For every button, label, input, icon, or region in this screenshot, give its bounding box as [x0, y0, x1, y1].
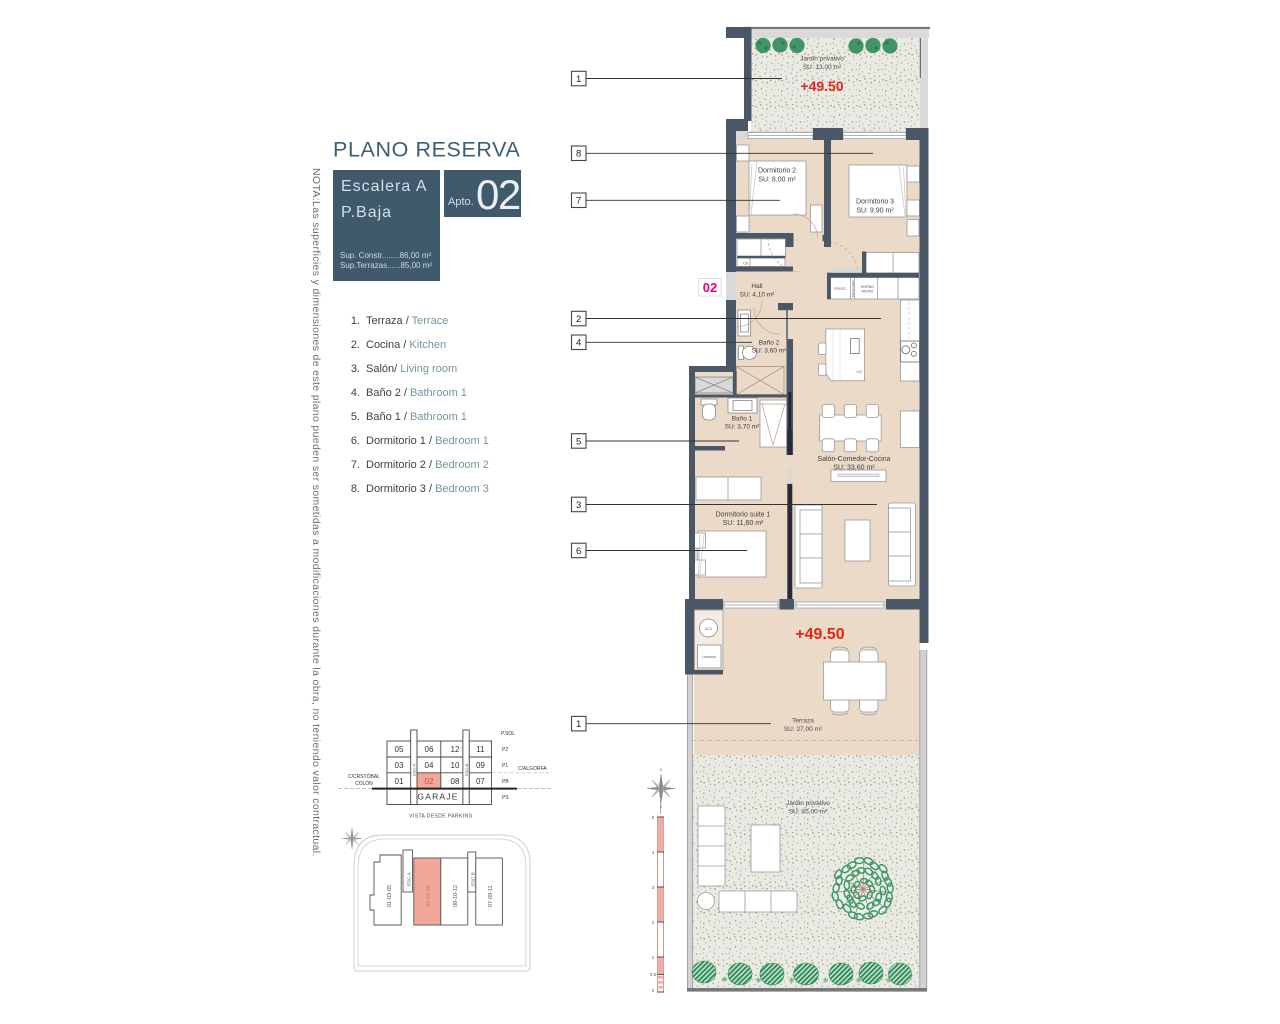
svg-text:SU: 11,60 m²: SU: 11,60 m² — [723, 520, 764, 527]
svg-text:Jardin privativo: Jardin privativo — [786, 800, 830, 807]
svg-text:Apto.: Apto. — [448, 196, 474, 208]
svg-text:Hall: Hall — [751, 283, 763, 290]
svg-text:02: 02 — [703, 280, 717, 295]
svg-text:08-10-12: 08-10-12 — [453, 885, 459, 907]
svg-text:3.: 3. — [351, 363, 360, 375]
svg-text:HORNO: HORNO — [861, 285, 875, 289]
svg-text:MICRO: MICRO — [862, 290, 874, 294]
svg-text:PLANO RESERVA: PLANO RESERVA — [333, 138, 520, 162]
svg-text:ESC-A: ESC-A — [407, 872, 412, 886]
svg-text:SU: 13,00 m²: SU: 13,00 m² — [803, 64, 842, 71]
svg-text:04: 04 — [425, 761, 434, 770]
svg-text:P1: P1 — [502, 763, 508, 769]
svg-text:07-09-11: 07-09-11 — [488, 885, 494, 907]
svg-text:+49.50: +49.50 — [800, 78, 843, 94]
svg-text:6.: 6. — [351, 435, 360, 447]
svg-text:SU: 33,60 m²: SU: 33,60 m² — [833, 465, 875, 472]
svg-text:5.: 5. — [351, 411, 360, 423]
svg-text:2: 2 — [576, 314, 581, 325]
svg-text:S: S — [660, 804, 663, 809]
svg-text:CE: CE — [743, 261, 749, 266]
svg-text:COLÓN: COLÓN — [355, 780, 373, 787]
svg-text:ACS: ACS — [705, 627, 713, 631]
svg-text:FRIGO: FRIGO — [834, 287, 846, 291]
svg-text:02: 02 — [476, 171, 520, 218]
svg-text:Salón-Comedor-Cocina: Salón-Comedor-Cocina — [817, 456, 890, 463]
svg-text:PS: PS — [502, 795, 509, 801]
svg-text:11: 11 — [476, 745, 485, 754]
svg-text:2.: 2. — [351, 339, 360, 351]
svg-text:01-03-05: 01-03-05 — [387, 885, 393, 907]
svg-text:Dormitorio 2: Dormitorio 2 — [758, 168, 796, 175]
svg-text:3: 3 — [576, 500, 581, 511]
svg-text:07: 07 — [476, 777, 485, 786]
svg-text:4.: 4. — [351, 387, 360, 399]
svg-text:Salón/ Living room: Salón/ Living room — [366, 363, 457, 375]
svg-text:1.: 1. — [351, 315, 360, 327]
svg-text:7.: 7. — [351, 459, 360, 471]
svg-text:Dormitorio 3 / Bedroom 3: Dormitorio 3 / Bedroom 3 — [366, 483, 489, 495]
svg-text:Baño 2: Baño 2 — [759, 340, 780, 347]
svg-text:SU: 3,60 m²: SU: 3,60 m² — [752, 348, 788, 355]
svg-text:Lavadora: Lavadora — [702, 655, 716, 659]
svg-text:06: 06 — [425, 745, 434, 754]
svg-text:Dormitorio 1 / Bedroom 1: Dormitorio 1 / Bedroom 1 — [366, 435, 489, 447]
svg-text:SU: 45,00 m²: SU: 45,00 m² — [789, 809, 828, 816]
svg-text:5: 5 — [576, 436, 581, 447]
svg-text:P2: P2 — [502, 747, 508, 753]
svg-text:Sup. Constr........86,00 m²: Sup. Constr........86,00 m² — [340, 251, 431, 260]
svg-text:ESC-A: ESC-A — [412, 763, 417, 776]
svg-text:8: 8 — [576, 149, 581, 160]
svg-text:0.5: 0.5 — [650, 972, 657, 977]
svg-text:08: 08 — [451, 777, 460, 786]
svg-text:7: 7 — [576, 196, 581, 207]
svg-text:10: 10 — [451, 761, 460, 770]
svg-text:Dormitorio 3: Dormitorio 3 — [856, 199, 894, 206]
svg-text:02: 02 — [425, 777, 434, 786]
svg-text:GARAJE: GARAJE — [417, 792, 458, 802]
svg-text:ESC-B: ESC-B — [464, 763, 469, 776]
svg-text:Baño 1 / Bathroom 1: Baño 1 / Bathroom 1 — [366, 411, 467, 423]
svg-text:Baño 1: Baño 1 — [732, 416, 753, 423]
svg-text:N: N — [660, 767, 663, 772]
svg-text:PB: PB — [502, 779, 509, 785]
svg-text:NOTA:Las superficies y dimensi: NOTA:Las superficies y dimensiones de es… — [310, 168, 322, 857]
svg-text:P.Baja: P.Baja — [341, 204, 392, 221]
svg-text:03: 03 — [395, 761, 404, 770]
svg-text:SU: 8,00 m²: SU: 8,00 m² — [758, 177, 796, 184]
svg-text:Baño 2 / Bathroom 1: Baño 2 / Bathroom 1 — [366, 387, 467, 399]
svg-text:SU: 27,00 m²: SU: 27,00 m² — [784, 726, 823, 733]
svg-text:01: 01 — [395, 777, 404, 786]
svg-text:Terraza: Terraza — [792, 718, 814, 725]
svg-text:Escalera A: Escalera A — [341, 178, 427, 195]
svg-text:SU: 9,90 m²: SU: 9,90 m² — [856, 208, 894, 215]
svg-text:4: 4 — [576, 338, 581, 349]
svg-text:SU: 4,10 m²: SU: 4,10 m² — [740, 292, 776, 299]
svg-text:09: 09 — [476, 761, 485, 770]
svg-text:+49.50: +49.50 — [795, 626, 844, 643]
svg-text:C/CRSTÓBAL: C/CRSTÓBAL — [348, 773, 380, 780]
svg-text:02-04-06: 02-04-06 — [426, 885, 432, 907]
svg-text:VISTA DESDE PARKING: VISTA DESDE PARKING — [409, 814, 473, 820]
svg-text:C/ALGORFA: C/ALGORFA — [518, 766, 547, 772]
svg-text:05: 05 — [395, 745, 404, 754]
svg-text:12: 12 — [451, 745, 460, 754]
svg-text:LAV: LAV — [856, 370, 863, 374]
svg-text:1: 1 — [576, 74, 581, 85]
svg-text:SU: 3,70 m²: SU: 3,70 m² — [725, 424, 761, 431]
svg-text:Jardin privativo: Jardin privativo — [800, 56, 844, 63]
svg-text:Dormitorio suite 1: Dormitorio suite 1 — [716, 512, 771, 519]
svg-text:BOTELLERO: BOTELLERO — [851, 279, 855, 297]
svg-text:6: 6 — [576, 546, 581, 557]
svg-text:1: 1 — [576, 719, 581, 730]
svg-text:P.SOL: P.SOL — [501, 731, 515, 737]
svg-text:Dormitorio 2 / Bedroom 2: Dormitorio 2 / Bedroom 2 — [366, 459, 489, 471]
svg-text:Terraza / Terrace: Terraza / Terrace — [366, 315, 448, 327]
svg-text:8.: 8. — [351, 483, 360, 495]
svg-text:ESC-B: ESC-B — [470, 872, 475, 886]
svg-text:Sup.Terrazas......85,00 m²: Sup.Terrazas......85,00 m² — [340, 261, 432, 270]
svg-text:Cocina / Kitchen: Cocina / Kitchen — [366, 339, 446, 351]
